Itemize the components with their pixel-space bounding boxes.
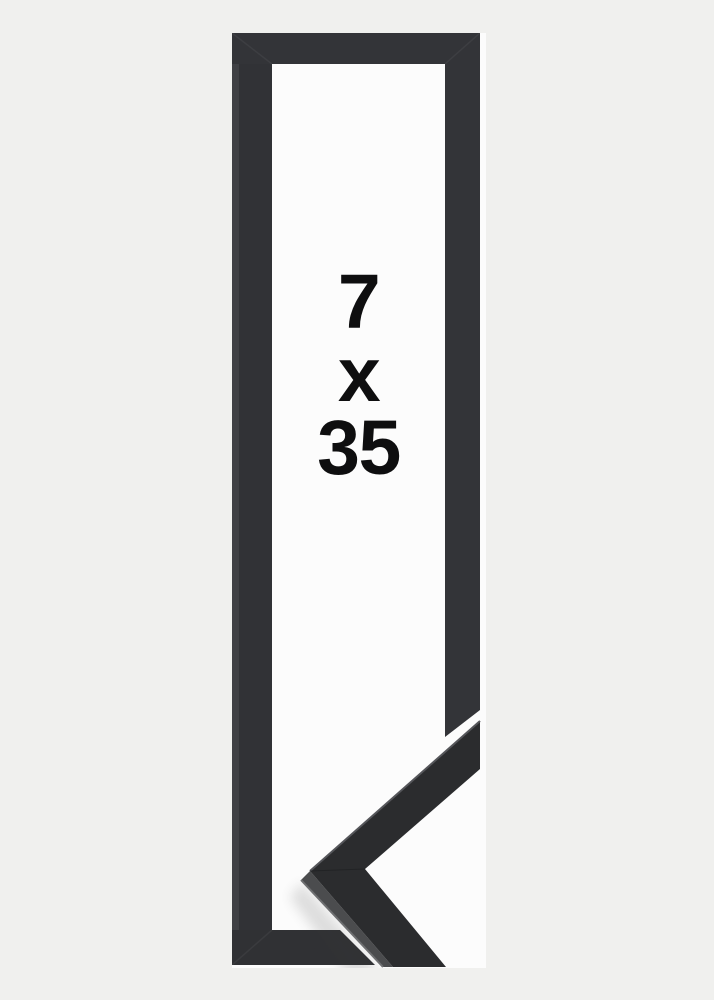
frame-right-border <box>445 33 480 737</box>
size-label-width: 7 <box>272 266 445 339</box>
frame-left-bevel-highlight <box>232 33 239 965</box>
frame-top-border <box>232 33 480 64</box>
frame-elevation <box>232 33 480 965</box>
frame-graphic <box>232 33 486 968</box>
frame-product-photo: 7 x 35 <box>232 33 486 968</box>
size-label-height: 35 <box>272 412 445 485</box>
corner-sample-upper-edge-highlight <box>310 721 480 871</box>
size-label: 7 x 35 <box>272 266 445 485</box>
corner-sample <box>290 721 480 968</box>
size-label-separator: x <box>272 339 445 412</box>
product-page-background: 7 x 35 <box>0 0 714 1000</box>
